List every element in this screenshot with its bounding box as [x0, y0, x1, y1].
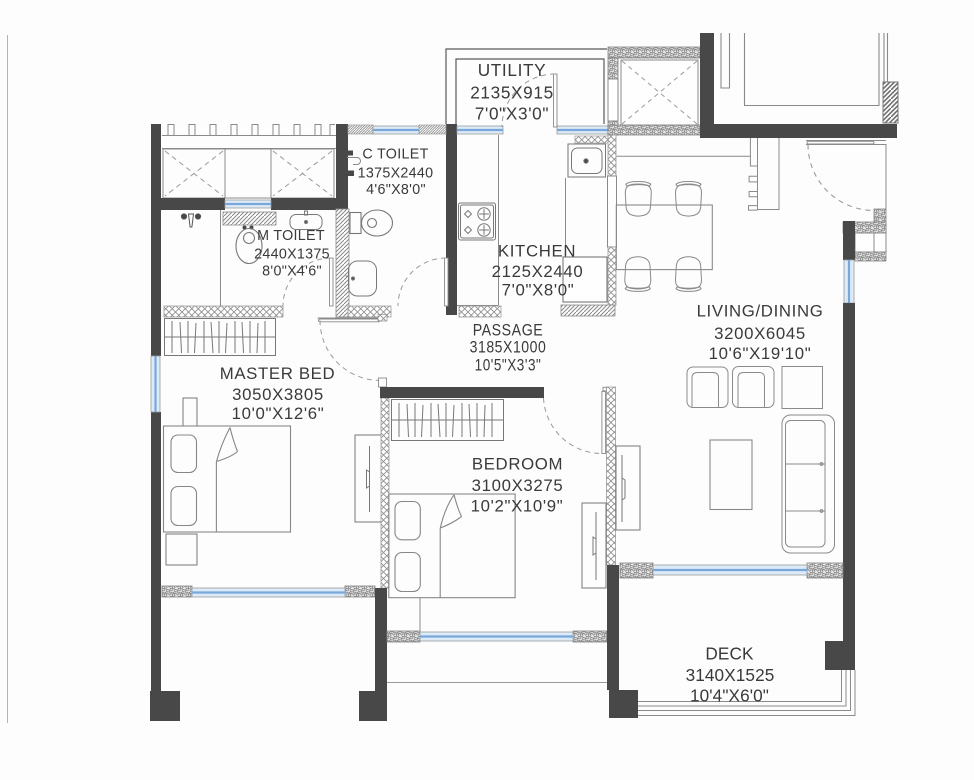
svg-text:LIVING/DINING: LIVING/DINING	[697, 302, 824, 321]
svg-text:2135X915: 2135X915	[470, 83, 554, 103]
svg-text:C TOILET: C TOILET	[362, 146, 428, 162]
svg-text:7'0"X3'0": 7'0"X3'0"	[475, 103, 549, 123]
svg-text:3050X3805: 3050X3805	[232, 385, 324, 404]
svg-text:2440X1375: 2440X1375	[254, 247, 330, 263]
svg-text:3100X3275: 3100X3275	[472, 476, 564, 495]
svg-text:10'6"X19'10": 10'6"X19'10"	[709, 344, 812, 363]
svg-text:4'6"X8'0": 4'6"X8'0"	[366, 182, 426, 198]
svg-text:8'0"X4'6": 8'0"X4'6"	[262, 263, 322, 279]
svg-text:2125X2440: 2125X2440	[492, 262, 584, 281]
svg-text:10'5"X3'3": 10'5"X3'3"	[475, 356, 542, 375]
svg-text:3140X1525: 3140X1525	[686, 665, 775, 685]
svg-text:7'0"X8'0": 7'0"X8'0"	[502, 281, 575, 300]
svg-text:M TOILET: M TOILET	[257, 228, 325, 244]
svg-text:UTILITY: UTILITY	[478, 60, 547, 80]
svg-text:KITCHEN: KITCHEN	[498, 242, 576, 261]
svg-text:3200X6045: 3200X6045	[714, 324, 806, 343]
svg-text:3185X1000: 3185X1000	[470, 338, 547, 357]
svg-text:1375X2440: 1375X2440	[358, 166, 434, 182]
svg-text:MASTER BED: MASTER BED	[220, 364, 336, 383]
svg-text:BEDROOM: BEDROOM	[472, 455, 563, 474]
svg-text:DECK: DECK	[705, 644, 754, 664]
svg-text:10'4"X6'0": 10'4"X6'0"	[690, 686, 769, 706]
svg-text:10'2"X10'9": 10'2"X10'9"	[471, 497, 564, 516]
svg-text:10'0"X12'6": 10'0"X12'6"	[232, 404, 325, 423]
